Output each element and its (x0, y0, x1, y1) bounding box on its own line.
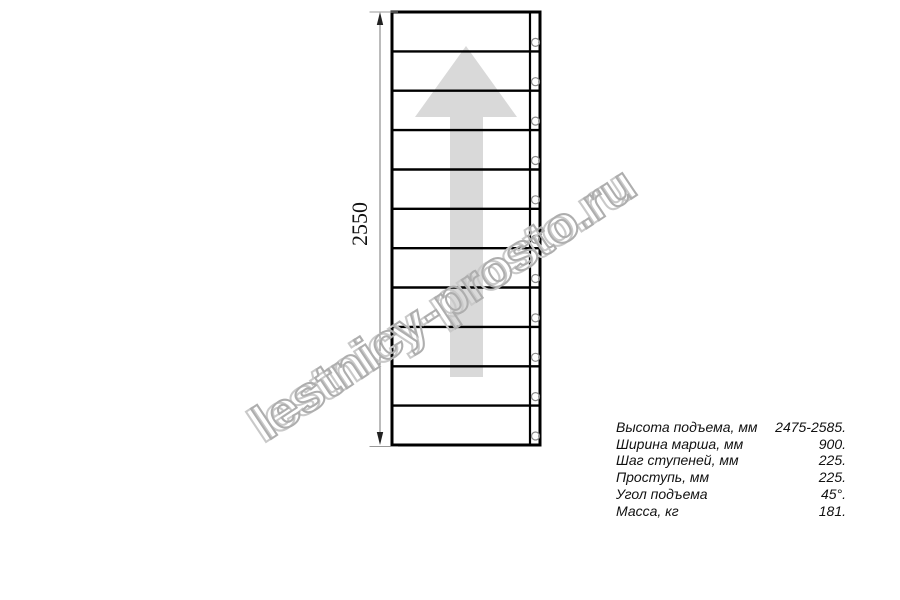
spec-value: 900. (819, 436, 846, 453)
spec-value: 225. (819, 452, 846, 469)
bolt-circle-icon (532, 157, 540, 165)
dimension-value: 2550 (347, 202, 372, 246)
dimension-arrow-down-icon (377, 432, 383, 445)
spec-value: 225. (819, 469, 846, 486)
bolt-circle-icon (532, 38, 540, 46)
spec-value: 45°. (821, 486, 846, 503)
bolt-circle-icon (532, 196, 540, 204)
spec-value: 181. (819, 503, 846, 520)
spec-row: Высота подъема, мм2475-2585. (616, 419, 846, 436)
spec-value: 2475-2585. (775, 419, 846, 436)
bolt-circle-icon (532, 117, 540, 125)
bolt-circle-icon (532, 432, 540, 440)
spec-label: Высота подъема, мм (616, 419, 758, 436)
spec-label: Шаг ступеней, мм (616, 452, 739, 469)
watermark: lestnicy-prosto.ru lestnicy-prosto.ru (238, 156, 646, 454)
spec-label: Проступь, мм (616, 469, 709, 486)
bolt-circle-icon (532, 78, 540, 86)
bolt-circle-icon (532, 353, 540, 361)
specs-table: Высота подъема, мм2475-2585.Ширина марша… (616, 419, 846, 519)
stair-drawing-page: 2550 lestnicy-prosto.ru lestnicy-prosto.… (0, 0, 900, 600)
spec-row: Ширина марша, мм900. (616, 436, 846, 453)
spec-row: Шаг ступеней, мм225. (616, 452, 846, 469)
spec-label: Ширина марша, мм (616, 436, 743, 453)
spec-row: Масса, кг181. (616, 503, 846, 520)
spec-label: Масса, кг (616, 503, 679, 520)
dimension-arrow-up-icon (377, 12, 383, 25)
spec-row: Проступь, мм225. (616, 469, 846, 486)
spec-label: Угол подъема (616, 486, 708, 503)
spec-row: Угол подъема45°. (616, 486, 846, 503)
bolt-circle-icon (532, 393, 540, 401)
bolt-circle-icon (532, 314, 540, 322)
